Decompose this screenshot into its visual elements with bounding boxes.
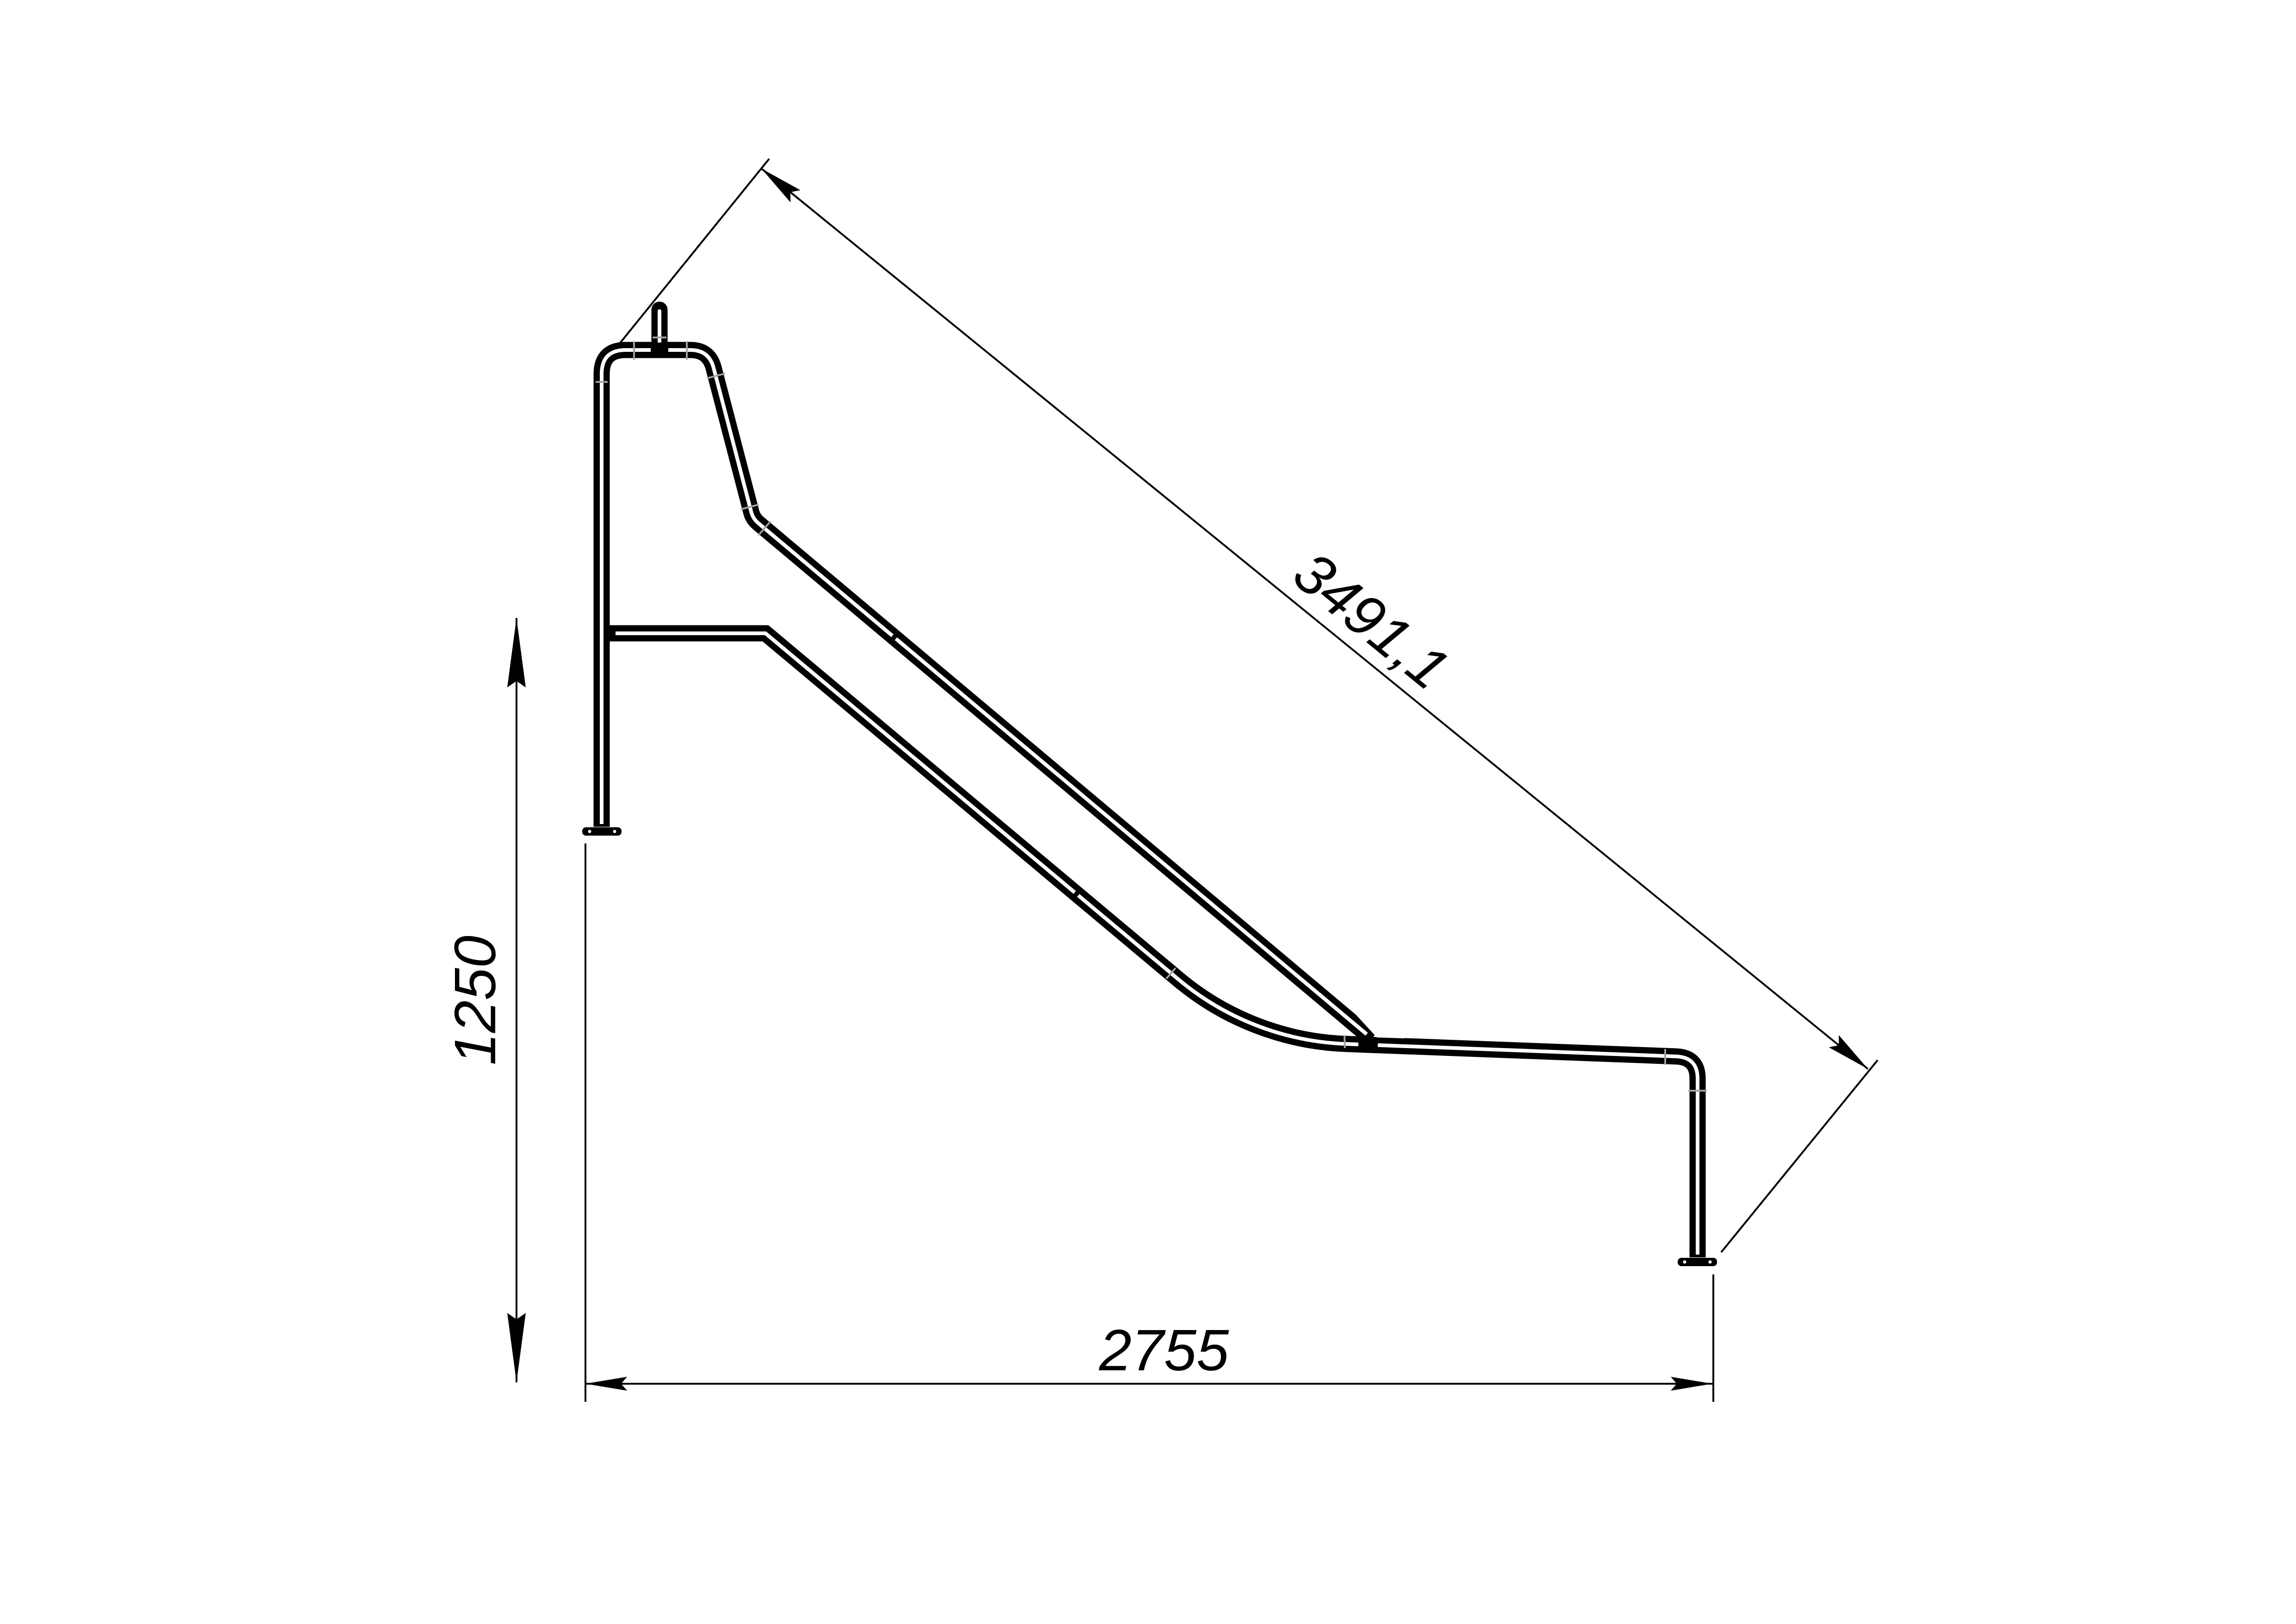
svg-text:2755: 2755: [1099, 1318, 1229, 1383]
svg-text:1250: 1250: [442, 936, 508, 1065]
